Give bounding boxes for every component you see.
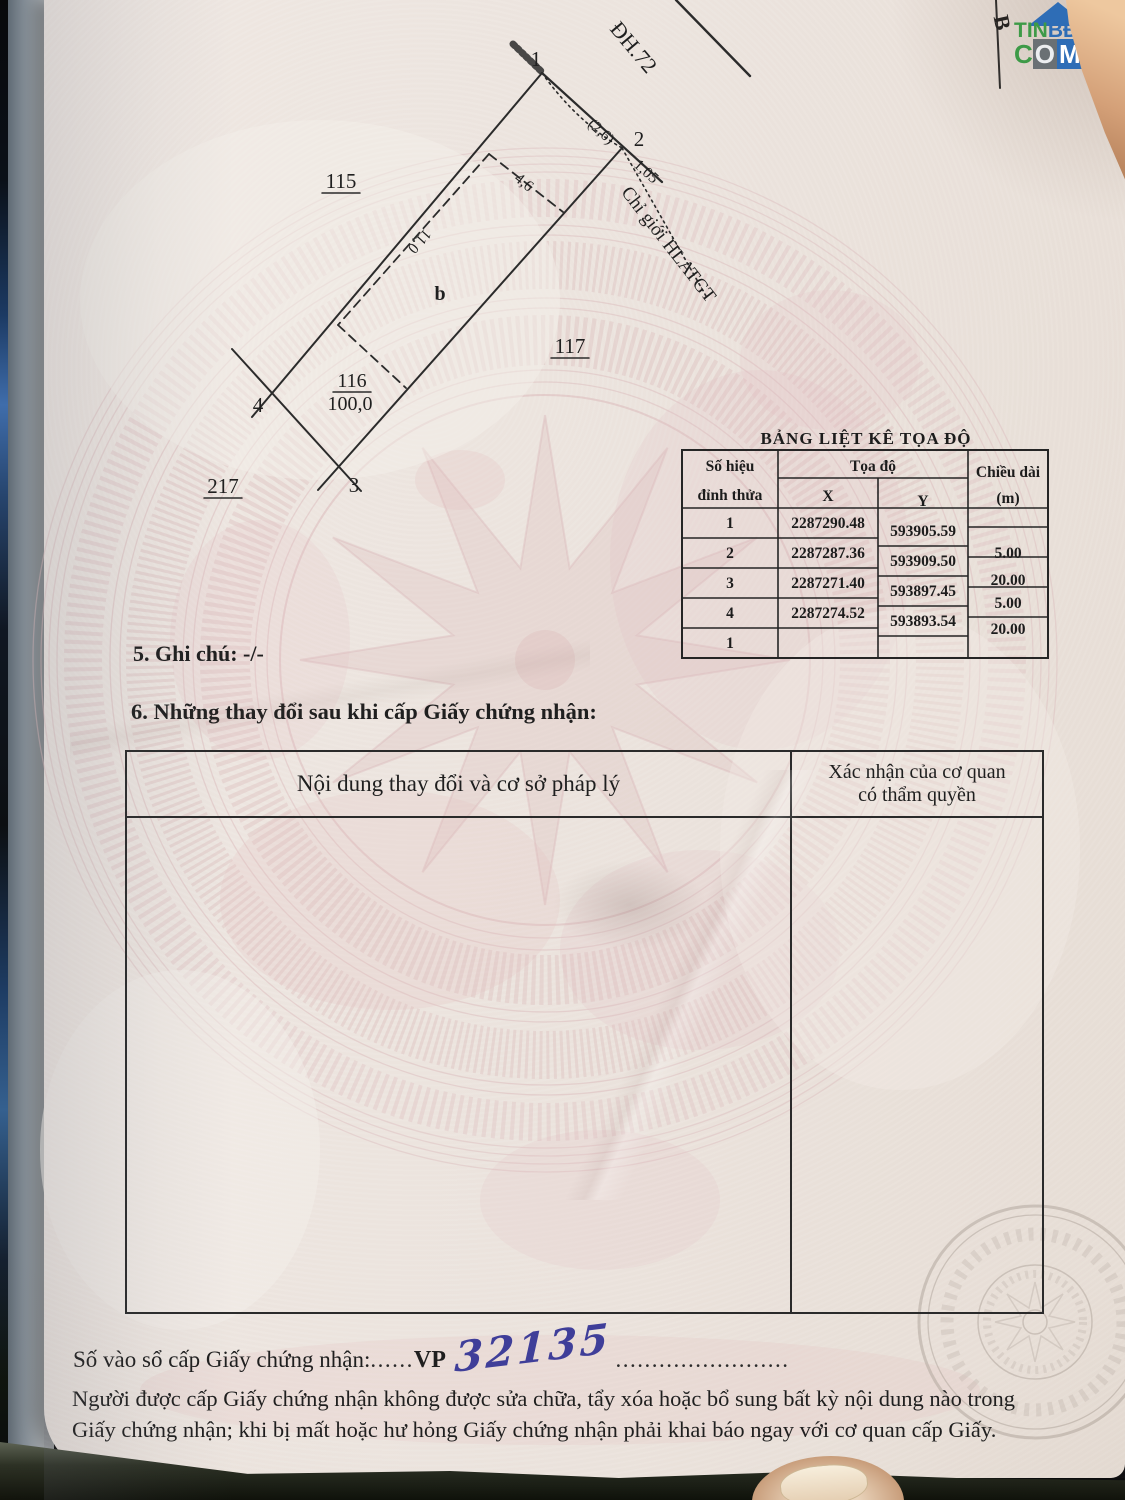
section-5-note: 5. Ghi chú: -/- — [133, 641, 264, 667]
vertex-4-label: 4 — [253, 393, 264, 417]
row-vertex: 1 — [726, 635, 734, 652]
col-vertex-line2: đỉnh thửa — [698, 487, 763, 504]
changes-col2-header-line1: Xác nhận của cơ quan — [828, 761, 1005, 784]
row-x: 2287274.52 — [791, 605, 865, 622]
dim-1-05: 1,05 — [630, 156, 662, 187]
changes-col1-header: Nội dung thay đổi và cơ sở pháp lý — [127, 752, 790, 818]
row-len: 5.00 — [994, 545, 1021, 562]
logo-letter-o: O — [1033, 39, 1057, 69]
fingernail — [778, 1461, 869, 1500]
row-vertex: 1 — [726, 515, 734, 532]
changes-table: Nội dung thay đổi và cơ sở pháp lý Xác n… — [125, 750, 1044, 1314]
sub-parcel-b-label: b — [434, 283, 445, 305]
row-vertex: 2 — [726, 545, 734, 562]
col-vertex-line1: Số hiệu — [706, 458, 755, 475]
serial-line: Số vào sổ cấp Giấy chứng nhận:......VP32… — [73, 1329, 790, 1377]
logo-letter-c: C — [1014, 39, 1033, 69]
photo-canvas: 1 2 3 4 115 116 100,0 117 217 b ĐH.72 Ch… — [0, 0, 1125, 1500]
side-2-3 — [318, 148, 622, 490]
vertex-3-label: 3 — [349, 473, 360, 497]
warning-note-line1: Người được cấp Giấy chứng nhận không đượ… — [72, 1386, 1015, 1412]
side-1-4 — [252, 73, 542, 417]
corridor-label: Chỉ giới HLATGT — [617, 183, 721, 307]
col-len-line1: Chiều dài — [976, 464, 1041, 481]
changes-table-col2: Xác nhận của cơ quan có thẩm quyền — [792, 752, 1042, 1312]
col-y: Y — [917, 493, 928, 510]
row-y: 593893.54 — [890, 613, 956, 630]
serial-label: Số vào sổ cấp Giấy chứng nhận: — [73, 1347, 370, 1372]
changes-col2-header-line2: có thẩm quyền — [858, 784, 976, 807]
parcel-217-label: 217 — [207, 474, 239, 498]
marker-b-line — [996, 0, 1000, 88]
row-vertex: 3 — [726, 575, 734, 592]
changes-table-col1: Nội dung thay đổi và cơ sở pháp lý — [127, 752, 792, 1312]
dots-leader: ........................ — [616, 1347, 790, 1372]
coord-table-title: BẢNG LIỆT KÊ TỌA ĐỘ — [760, 429, 971, 448]
parcel-117-label: 117 — [555, 334, 586, 358]
col-x: X — [822, 488, 834, 505]
section-marker-b: B — [989, 13, 1017, 33]
row-len: 20.00 — [991, 621, 1026, 638]
row-y: 593905.59 — [890, 523, 956, 540]
row-x: 2287271.40 — [791, 575, 865, 592]
row-x: 2287287.36 — [791, 545, 865, 562]
changes-col2-header: Xác nhận của cơ quan có thẩm quyền — [792, 752, 1042, 818]
row-y: 593897.45 — [890, 583, 956, 600]
dots-leader: ...... — [370, 1347, 414, 1372]
parcel-116-area: 100,0 — [328, 393, 373, 415]
row-y: 593909.50 — [890, 553, 956, 570]
parcel-116-label: 116 — [337, 370, 366, 392]
section-6-heading: 6. Những thay đổi sau khi cấp Giấy chứng… — [131, 699, 597, 725]
row-vertex: 4 — [726, 605, 734, 622]
parcel-115-label: 115 — [326, 169, 357, 193]
row-len: 5.00 — [994, 595, 1021, 612]
vertex-1-label: 1 — [531, 47, 542, 71]
vertex-2-label: 2 — [634, 127, 645, 151]
dim-2-6: (2,6) — [584, 115, 617, 148]
serial-prefix: VP — [414, 1347, 446, 1373]
col-len-line2: (m) — [996, 490, 1019, 507]
row-x: 2287290.48 — [791, 515, 865, 532]
road-name-label: ĐH.72 — [605, 16, 662, 77]
warning-note-line2: Giấy chứng nhận; khi bị mất hoặc hư hỏng… — [72, 1417, 996, 1443]
road-line — [676, 0, 750, 76]
row-len: 20.00 — [991, 572, 1026, 589]
col-coord: Tọa độ — [850, 458, 896, 475]
